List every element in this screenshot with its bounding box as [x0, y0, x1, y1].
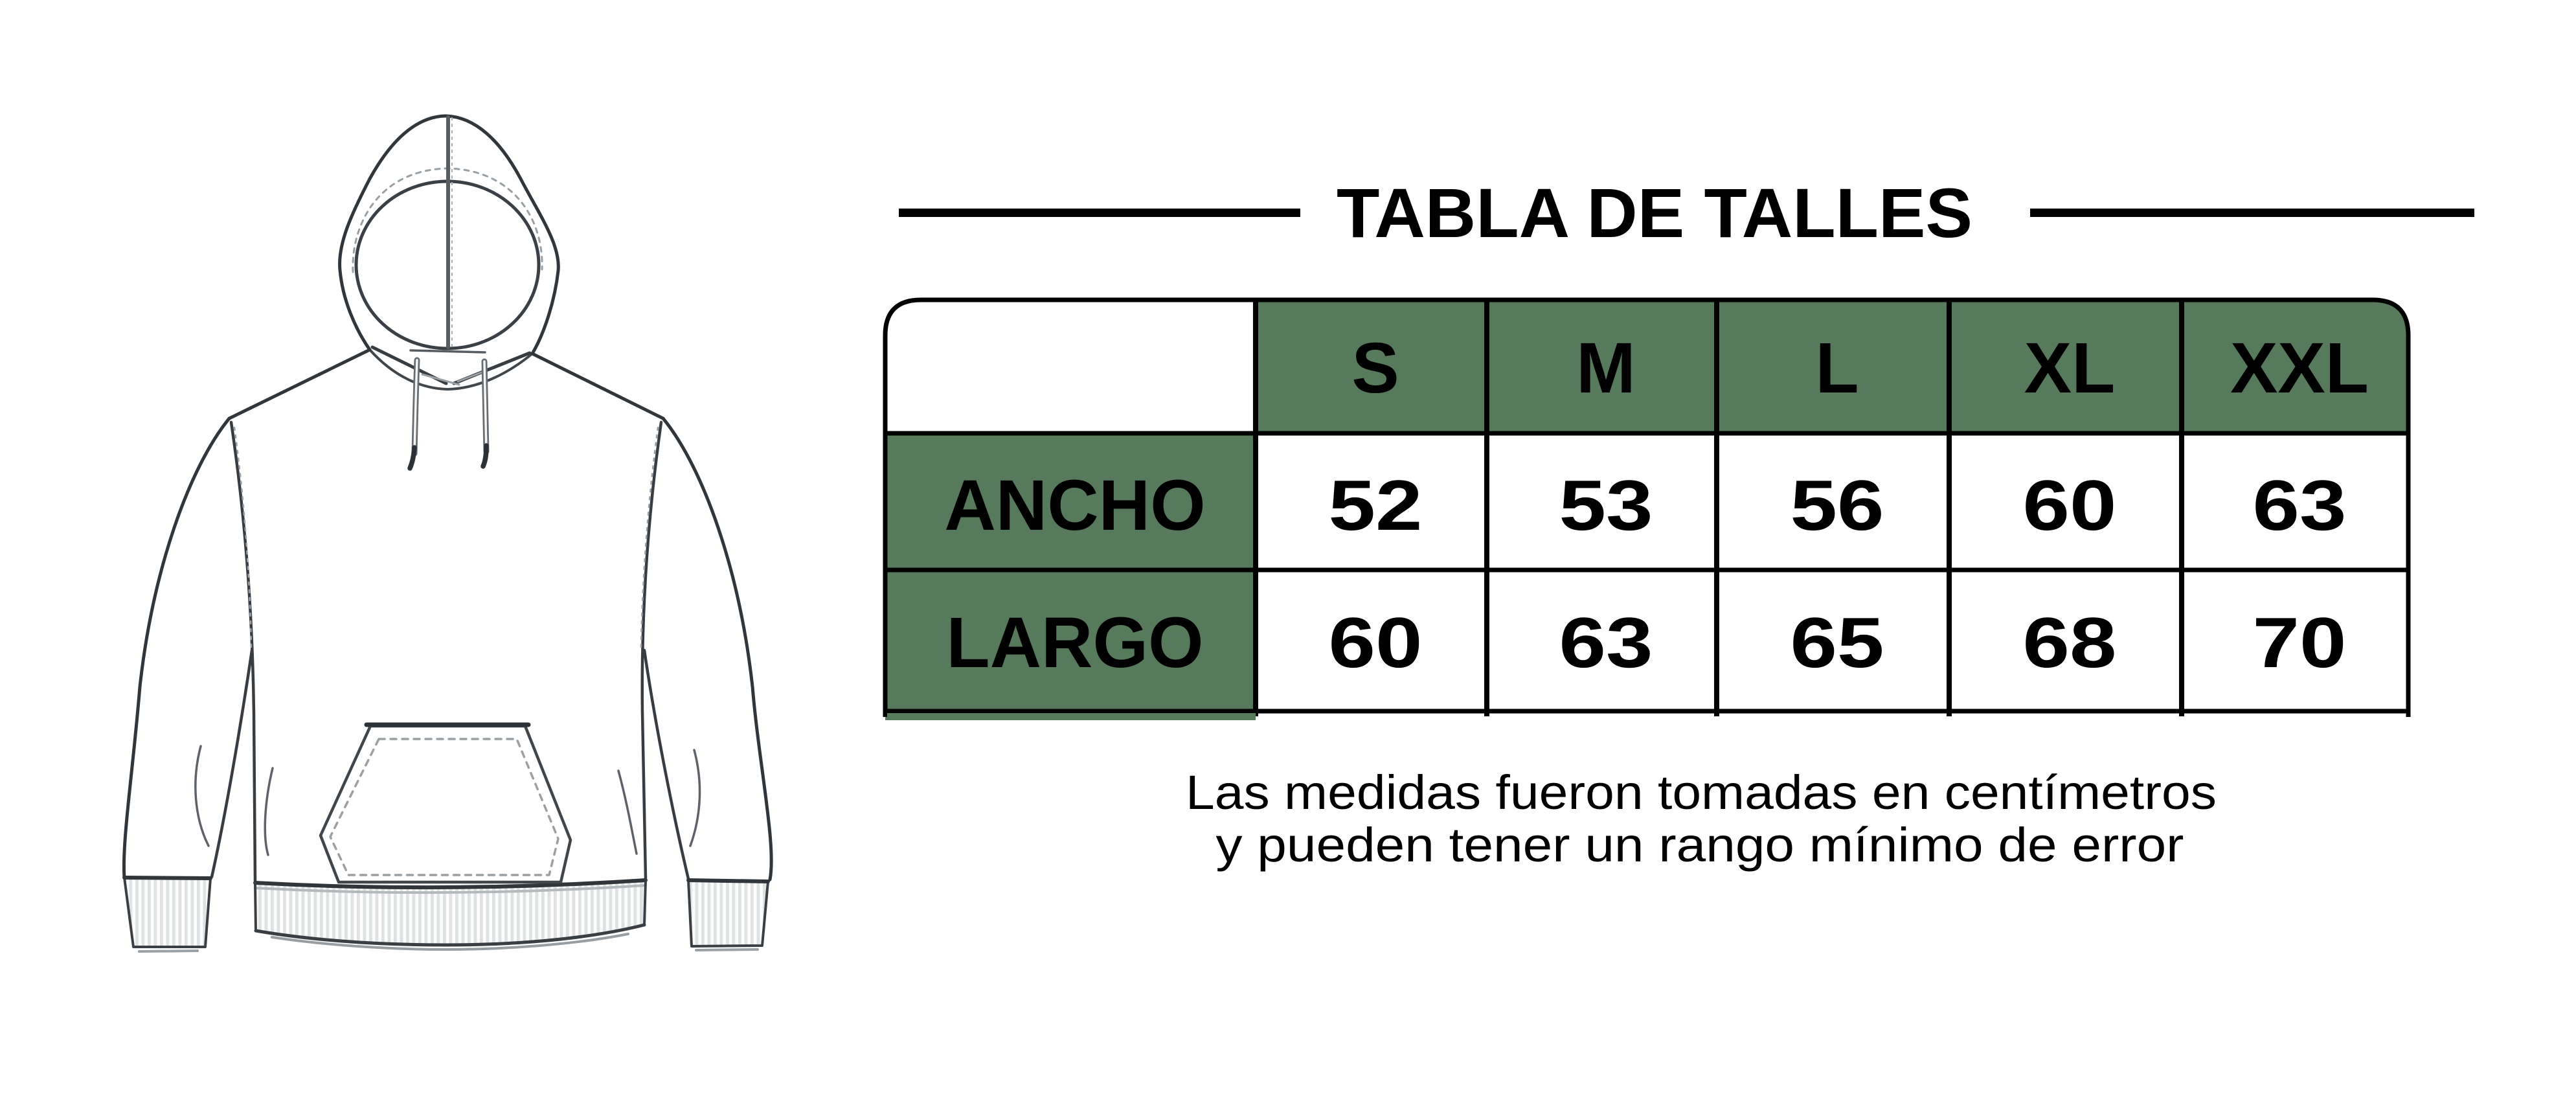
svg-text:60: 60 — [2023, 466, 2117, 545]
svg-text:L: L — [1815, 328, 1859, 408]
svg-text:68: 68 — [2023, 603, 2117, 683]
svg-text:60: 60 — [1329, 603, 1423, 683]
svg-text:M: M — [1576, 328, 1636, 408]
svg-text:63: 63 — [1559, 603, 1653, 683]
svg-text:53: 53 — [1559, 466, 1653, 545]
svg-text:TABLA DE TALLES: TABLA DE TALLES — [1337, 174, 1972, 252]
svg-text:XL: XL — [2024, 328, 2116, 408]
svg-text:63: 63 — [2253, 466, 2347, 545]
svg-text:XXL: XXL — [2230, 328, 2369, 408]
svg-text:52: 52 — [1329, 466, 1423, 545]
svg-text:S: S — [1351, 328, 1399, 408]
svg-text:70: 70 — [2253, 603, 2347, 683]
svg-text:LARGO: LARGO — [946, 603, 1203, 683]
svg-text:Las medidas fueron tomadas en: Las medidas fueron tomadas en centímetro… — [1186, 766, 2217, 819]
svg-text:ANCHO: ANCHO — [944, 466, 1205, 545]
svg-text:65: 65 — [1791, 603, 1884, 683]
svg-text:y pueden tener un rango mínimo: y pueden tener un rango mínimo de error — [1216, 818, 2184, 872]
svg-text:56: 56 — [1791, 466, 1884, 545]
